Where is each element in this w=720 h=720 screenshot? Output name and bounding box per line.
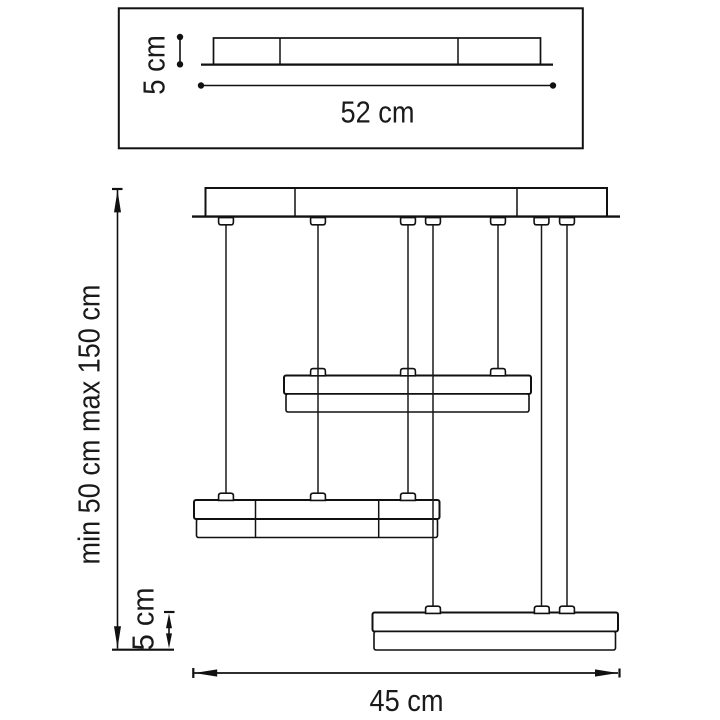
svg-text:min 50 cm max 150 cm: min 50 cm max 150 cm	[73, 285, 107, 565]
svg-text:52 cm: 52 cm	[341, 96, 415, 130]
svg-text:5 cm: 5 cm	[127, 587, 161, 650]
svg-text:45 cm: 45 cm	[370, 684, 444, 718]
svg-text:5 cm: 5 cm	[138, 35, 172, 95]
